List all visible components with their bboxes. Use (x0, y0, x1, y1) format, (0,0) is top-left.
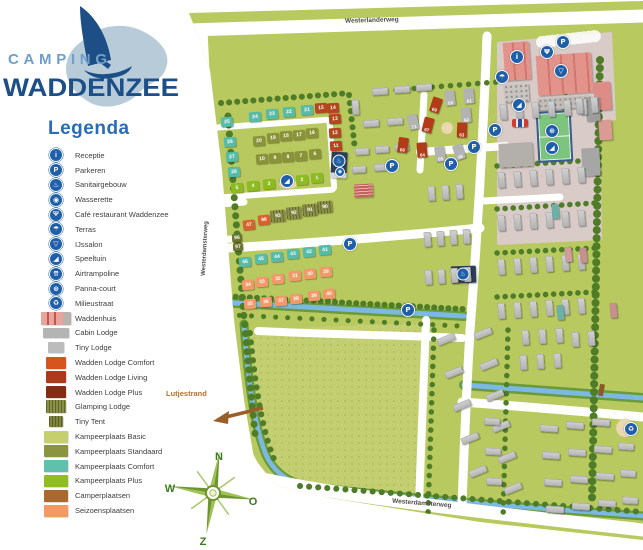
legend-item-wadden-lodge-plus: Wadden Lodge Plus (40, 385, 198, 400)
playground-icon: ◢ (545, 141, 559, 155)
caravan (486, 478, 502, 486)
legend-item-label: Seizoensplaatsen (75, 506, 134, 515)
legend-item-label: Cabin Lodge (75, 328, 118, 337)
lodge-67: 67 (421, 117, 434, 134)
plot-24: 24 (249, 112, 262, 123)
caravan (587, 331, 595, 346)
tiny-lodge-swatch (48, 342, 64, 353)
legend-item-label: Kampeerplaats Plus (75, 476, 142, 485)
sanitary-icon: ♨ (333, 155, 346, 168)
caravan (503, 482, 522, 495)
wadden-lodge-living-swatch (46, 371, 66, 383)
tiny-tent-swatch (49, 416, 63, 427)
caravan (538, 329, 546, 344)
plot-8: 8 (282, 152, 295, 163)
legend-item-cafe-restaurant: ΨCafé restaurant Waddenzee (40, 207, 198, 222)
caravan (444, 366, 463, 379)
logo-line2: WADDENZEE (3, 74, 179, 102)
legend-item-label: Wadden Lodge Plus (75, 388, 142, 397)
plot-21: 21 (301, 105, 314, 116)
caravan (577, 167, 585, 184)
wadden-lodge-comfort-swatch (46, 357, 66, 369)
legend-item-kampeerplaats-comfort: Kampeerplaats Comfort (40, 459, 198, 474)
caravan (590, 97, 598, 114)
caravan (536, 354, 544, 369)
caravan (513, 302, 521, 319)
kampeerplaats-standaard-swatch (44, 445, 68, 457)
plot-22: 22 (283, 107, 296, 118)
caravan (553, 353, 561, 368)
caravan (462, 229, 470, 244)
parking-icon: P (401, 303, 415, 317)
legend-title: Legenda (48, 118, 198, 140)
playground-icon: ◢ (50, 253, 62, 265)
legend-item-label: Parkeren (75, 166, 105, 175)
caravan (546, 505, 564, 513)
recycle-icon: ♻ (624, 422, 638, 436)
lodge-69: 69 (429, 96, 443, 113)
plot-29: 29 (320, 266, 333, 277)
plot-90: 90 (317, 200, 333, 213)
caravan (598, 499, 616, 507)
plot-46: 46 (239, 257, 252, 268)
caravan (424, 270, 432, 285)
caravan (437, 269, 445, 284)
caravan (579, 248, 587, 264)
caravan (468, 465, 487, 478)
lodge-63: 63 (457, 122, 468, 137)
legend-item-label: Receptie (75, 151, 105, 160)
caravan (561, 211, 569, 228)
legend-item-label: Kampeerplaats Basic (75, 432, 146, 441)
waddenhuis-swatch (41, 312, 71, 325)
caravan (485, 389, 504, 402)
caravan (594, 445, 612, 453)
legend-list: iReceptiePParkeren♨Sanitairgebouw◉Wasser… (40, 148, 198, 518)
plot-13: 13 (329, 114, 342, 125)
caravan (545, 300, 553, 317)
plot-40: 40 (323, 288, 336, 299)
caravan (497, 259, 505, 276)
caravan (542, 451, 560, 459)
caravan (561, 168, 569, 185)
plot-12: 12 (329, 128, 342, 139)
caravan (485, 448, 501, 456)
plot-23: 23 (266, 109, 279, 120)
legend-item-label: Camperplaatsen (75, 491, 130, 500)
caravan (473, 327, 492, 340)
terrace-icon: ☂ (50, 223, 62, 235)
caravan (551, 204, 559, 220)
info-icon: i (50, 149, 62, 161)
caravan (436, 231, 444, 246)
legend-panel: Legenda iReceptiePParkeren♨Sanitairgebou… (40, 118, 198, 518)
brand-logo: CAMPING WADDENZEE (0, 0, 200, 125)
caravan (575, 98, 583, 115)
plot-34: 34 (242, 279, 255, 290)
caravan (592, 418, 610, 426)
legend-item-kampeerplaats-basic: Kampeerplaats Basic (40, 429, 198, 444)
seizoensplaatsen-swatch (44, 505, 68, 517)
legend-item-glamping-lodge: Glamping Lodge (40, 400, 198, 415)
legend-item-airtrampoline: ⇈Airtrampoline (40, 266, 198, 281)
caravan (564, 247, 572, 263)
plot-45: 45 (255, 254, 268, 265)
caravan (555, 328, 563, 343)
legend-item-label: Wadden Lodge Living (75, 373, 147, 382)
caravan (540, 424, 558, 432)
waddenhuis-annex-building (598, 120, 612, 141)
plot-47: 47 (243, 219, 256, 230)
plot-17: 17 (293, 130, 306, 141)
caravan (351, 100, 359, 115)
parking-icon: P (343, 237, 357, 251)
caravan (513, 171, 521, 188)
icecream-icon: ▽ (50, 238, 62, 250)
lodge-60: 60 (444, 90, 456, 106)
caravan (519, 355, 527, 370)
caravan (622, 496, 638, 504)
restaurant-icon: Ψ (50, 209, 62, 221)
caravan (545, 169, 553, 186)
caravan (577, 298, 585, 315)
plot-28: 28 (228, 167, 241, 178)
caravan (577, 210, 585, 227)
parking-icon: P (50, 164, 62, 176)
legend-item-label: Wasserette (75, 195, 113, 204)
logo-line1: CAMPING (8, 51, 110, 68)
legend-item-sanitairgebouw: ♨Sanitairgebouw (40, 178, 198, 193)
plot-25: 25 (221, 117, 234, 128)
legend-item-terras: ☂Terras (40, 222, 198, 237)
caravan (513, 214, 521, 231)
legend-item-label: Sanitairgebouw (75, 180, 127, 189)
restaurant-icon: Ψ (540, 45, 554, 59)
legend-item-tiny-tent: Tiny Tent (40, 414, 198, 429)
glamping-lodge-swatch (46, 400, 66, 413)
plot-11: 11 (330, 141, 343, 152)
plot-39: 39 (308, 290, 321, 301)
legend-item-milieustraat: ♻Milieustraat (40, 296, 198, 311)
legend-item-wadden-lodge-living: Wadden Lodge Living (40, 370, 198, 385)
plot-36: 36 (260, 296, 273, 307)
parking-icon: P (467, 140, 481, 154)
plot-14: 14 (327, 103, 340, 114)
caravan (427, 186, 435, 201)
plot-44: 44 (271, 252, 284, 263)
legend-item-label: Kampeerplaats Standaard (75, 447, 162, 456)
caravan (372, 87, 388, 95)
legend-item-parkeren: PParkeren (40, 163, 198, 178)
shed-building (498, 142, 533, 168)
legend-item-label: Terras (75, 225, 96, 234)
plot-6: 6 (309, 149, 322, 160)
lodge-61: 61 (463, 88, 474, 104)
icecream-icon: ▽ (554, 64, 568, 78)
caravan (556, 305, 564, 321)
plot-38: 38 (290, 293, 303, 304)
caravan (449, 230, 457, 245)
legend-item-kampeerplaats-standaard: Kampeerplaats Standaard (40, 444, 198, 459)
caravan (484, 418, 500, 426)
plot-20: 20 (253, 136, 266, 147)
caravan (497, 172, 505, 189)
caravan (479, 358, 498, 371)
playground-icon: ◢ (280, 174, 294, 188)
legend-item-label: IJssalon (75, 240, 103, 249)
caravan (452, 399, 471, 412)
soccer-icon: ⊛ (50, 283, 62, 295)
airtrampoline (512, 119, 528, 127)
legend-item-wadden-lodge-comfort: Wadden Lodge Comfort (40, 355, 198, 370)
caravan (529, 170, 537, 187)
plot-98: 98 (258, 214, 271, 225)
caravan (596, 472, 614, 480)
lodge-62: 62 (460, 107, 472, 123)
caravan (572, 502, 590, 510)
legend-item-label: Tiny Lodge (75, 343, 112, 352)
caravan (545, 256, 553, 273)
plot-43: 43 (287, 249, 300, 260)
caravan (355, 148, 369, 156)
plot-16: 16 (306, 128, 319, 139)
plot-27: 27 (226, 152, 239, 163)
caravan (529, 257, 537, 274)
legend-item-waddenhuis: Waddenhuis (40, 311, 198, 326)
sanitary-icon: ♨ (50, 179, 62, 191)
legend-item-label: Café restaurant Waddenzee (75, 210, 169, 219)
legend-item-wasserette: ◉Wasserette (40, 192, 198, 207)
plot-26: 26 (224, 137, 237, 148)
caravan (513, 258, 521, 275)
trampoline-icon: ⇈ (50, 268, 62, 280)
legend-item-receptie: iReceptie (40, 148, 198, 163)
legend-item-cabin-lodge: Cabin Lodge (40, 326, 198, 341)
recycle-icon: ♻ (50, 297, 62, 309)
legend-item-kampeerplaats-plus: Kampeerplaats Plus (40, 474, 198, 489)
caravan (387, 117, 403, 125)
caravan (441, 185, 449, 200)
parking-icon: P (385, 159, 399, 173)
caravan (497, 215, 505, 232)
legend-item-speeltuin: ◢Speeltuin (40, 252, 198, 267)
legend-item-label: Tiny Tent (75, 417, 105, 426)
caravan (544, 478, 562, 486)
caravan (375, 146, 389, 154)
legend-item-label: Panna-court (75, 284, 116, 293)
plot-18: 18 (280, 131, 293, 142)
legend-item-panna-court: ⊛Panna-court (40, 281, 198, 296)
plot-42: 42 (303, 247, 316, 258)
lodge-64: 64 (416, 142, 427, 158)
plot-4: 4 (247, 181, 260, 192)
legend-item-ijssalon: ▽IJssalon (40, 237, 198, 252)
caravan (529, 213, 537, 230)
parking-icon: P (556, 35, 570, 49)
caravan (363, 119, 379, 127)
terrace-icon: ☂ (495, 70, 509, 84)
plot-15: 15 (315, 103, 328, 114)
plot-92: 92 (286, 206, 302, 219)
laundry-icon: ◉ (335, 167, 345, 177)
legend-item-label: Airtrampoline (75, 269, 119, 278)
soccer-icon: ⊛ (545, 124, 559, 138)
caravan (620, 469, 636, 477)
kampeerplaats-comfort-swatch (44, 460, 68, 472)
barn-building (354, 184, 374, 198)
caravan (531, 102, 539, 119)
caravan (570, 475, 588, 483)
plot-1: 1 (311, 173, 324, 184)
sanitary-icon: ♨ (457, 268, 470, 281)
legend-item-label: Waddenhuis (75, 314, 116, 323)
plot-2: 2 (296, 175, 309, 186)
plot-7: 7 (295, 151, 308, 162)
lodge-71: 71 (407, 114, 420, 131)
plot-19: 19 (267, 133, 280, 144)
playground-icon: ◢ (512, 98, 526, 112)
legend-item-label: Milieustraat (75, 299, 113, 308)
caravan (618, 442, 634, 450)
legend-item-label: Speeltuin (75, 254, 106, 263)
camperplaatsen-swatch (44, 490, 68, 502)
caravan (423, 232, 431, 247)
caravan (571, 332, 579, 347)
caravan (416, 83, 432, 91)
legend-item-tiny-lodge: Tiny Lodge (40, 340, 198, 355)
caravan (497, 303, 505, 320)
plot-31: 31 (289, 270, 302, 281)
plot-91: 91 (302, 203, 318, 216)
wadden-lodge-plus-swatch (46, 386, 66, 398)
caravan (609, 303, 617, 319)
plot-9: 9 (269, 153, 282, 164)
caravan (563, 100, 571, 117)
legend-item-camperplaatsen: Camperplaatsen (40, 488, 198, 503)
laundry-icon: ◉ (50, 194, 62, 206)
legend-item-label: Glamping Lodge (75, 402, 130, 411)
caravan (352, 166, 366, 174)
caravan (455, 184, 463, 199)
legend-item-label: Wadden Lodge Comfort (75, 358, 154, 367)
plot-10: 10 (256, 154, 269, 165)
caravan (499, 104, 507, 121)
plot-93: 93 (270, 209, 286, 222)
kampeerplaats-basic-swatch (44, 431, 68, 443)
caravan (460, 432, 479, 445)
plot-30: 30 (304, 268, 317, 279)
cabin-lodge-swatch (43, 328, 69, 338)
caravan (436, 333, 455, 346)
caravan (566, 421, 584, 429)
caravan (529, 301, 537, 318)
lodge-68: 68 (397, 137, 409, 153)
plot-3: 3 (263, 179, 276, 190)
caravan (394, 85, 410, 93)
plot-33: 33 (256, 276, 269, 287)
plot-41: 41 (319, 245, 332, 256)
camping-map-page: 2122232425262728414243444546123451617181… (0, 0, 643, 550)
kampeerplaats-plus-swatch (44, 475, 68, 487)
caravan (568, 448, 586, 456)
parking-icon: P (444, 157, 458, 171)
caravan (521, 330, 529, 345)
caravan (547, 101, 555, 118)
info-icon: i (510, 50, 524, 64)
plot-5: 5 (231, 183, 244, 194)
parking-icon: P (488, 123, 502, 137)
plot-96: 96 (232, 234, 243, 243)
plot-37: 37 (275, 295, 288, 306)
plot-32: 32 (272, 273, 285, 284)
legend-item-label: Kampeerplaats Comfort (75, 462, 154, 471)
plot-35: 35 (244, 298, 257, 309)
plot-97: 97 (233, 243, 244, 252)
legend-item-seizoensplaatsen: Seizoensplaatsen (40, 503, 198, 518)
